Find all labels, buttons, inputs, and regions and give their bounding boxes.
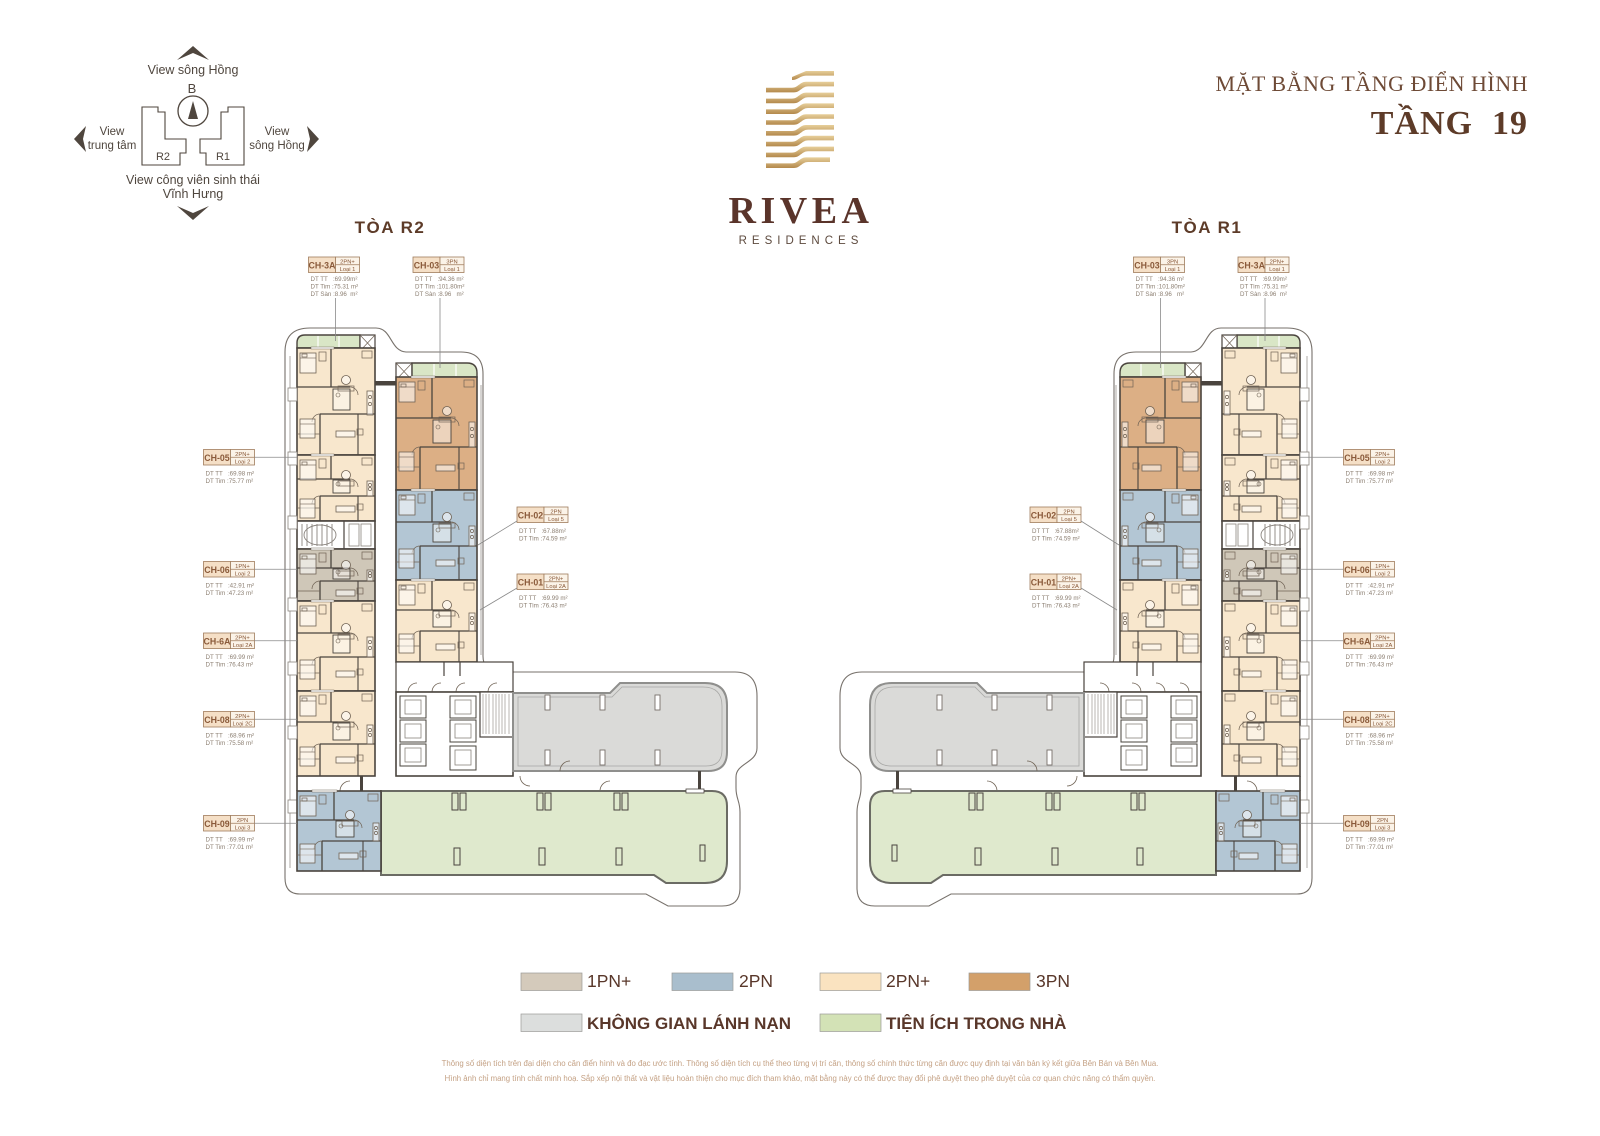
svg-text:RESIDENCES: RESIDENCES xyxy=(739,235,864,247)
svg-text:DT Tim :76.43 m²: DT Tim :76.43 m² xyxy=(1346,662,1394,669)
svg-text:2PN: 2PN xyxy=(550,510,561,516)
svg-text:DT TT :69.99 m²: DT TT :69.99 m² xyxy=(206,654,255,661)
svg-text:DT TT :69.98 m²: DT TT :69.98 m² xyxy=(206,471,255,478)
svg-text:CH-06: CH-06 xyxy=(1344,565,1370,575)
svg-text:View: View xyxy=(100,126,125,138)
svg-text:DT Sàn :8.96 m²: DT Sàn :8.96 m² xyxy=(1240,291,1287,298)
svg-text:CH-03: CH-03 xyxy=(1134,261,1160,271)
svg-text:Hình ảnh chỉ mang tính chất mi: Hình ảnh chỉ mang tính chất minh hoạ. Sắ… xyxy=(445,1074,1156,1083)
svg-text:DT TT :67.88m²: DT TT :67.88m² xyxy=(1032,528,1079,535)
svg-text:Loại 2C: Loại 2C xyxy=(1373,722,1393,728)
svg-text:R1: R1 xyxy=(216,151,230,163)
svg-text:sông Hồng: sông Hồng xyxy=(249,140,305,152)
svg-text:CH-3A: CH-3A xyxy=(309,261,337,271)
svg-text:Loại 3: Loại 3 xyxy=(235,826,251,832)
svg-text:2PN+: 2PN+ xyxy=(1375,636,1390,642)
svg-text:DT Tim :101.80m²: DT Tim :101.80m² xyxy=(415,284,464,291)
svg-text:DT Tim :75.58 m²: DT Tim :75.58 m² xyxy=(1346,740,1394,747)
svg-text:CH-09: CH-09 xyxy=(204,819,230,829)
svg-text:2PN+: 2PN+ xyxy=(886,971,930,991)
svg-text:Vĩnh Hưng: Vĩnh Hưng xyxy=(163,187,224,201)
svg-text:DT Tim :75.77 m²: DT Tim :75.77 m² xyxy=(206,478,254,485)
svg-text:DT Tim :76.43 m²: DT Tim :76.43 m² xyxy=(1032,603,1080,610)
svg-text:View công viên sinh thái: View công viên sinh thái xyxy=(126,173,260,187)
svg-text:DT Tim :75.31 m²: DT Tim :75.31 m² xyxy=(311,284,359,291)
svg-text:3PN: 3PN xyxy=(1036,971,1070,991)
svg-text:TẦNG 19: TẦNG 19 xyxy=(1371,103,1528,142)
svg-text:Loại 2A: Loại 2A xyxy=(546,584,566,590)
svg-text:Loại 5: Loại 5 xyxy=(1061,517,1077,523)
svg-text:2PN+: 2PN+ xyxy=(1062,577,1077,583)
svg-text:CH-01: CH-01 xyxy=(518,578,544,588)
svg-text:2PN+: 2PN+ xyxy=(1270,260,1285,266)
svg-text:CH-08: CH-08 xyxy=(204,715,230,725)
svg-text:Loại 2: Loại 2 xyxy=(1375,460,1391,466)
svg-text:1PN+: 1PN+ xyxy=(235,564,250,570)
svg-text:DT TT :69.99 m²: DT TT :69.99 m² xyxy=(1346,654,1395,661)
svg-text:DT Tim :76.43 m²: DT Tim :76.43 m² xyxy=(206,662,254,669)
svg-text:R2: R2 xyxy=(156,151,170,163)
svg-text:Loại 1: Loại 1 xyxy=(1269,267,1285,273)
svg-text:View: View xyxy=(265,126,290,138)
svg-text:CH-03: CH-03 xyxy=(414,261,440,271)
svg-text:DT TT :94.36 m²: DT TT :94.36 m² xyxy=(415,276,464,283)
svg-text:DT TT :69.99m²: DT TT :69.99m² xyxy=(1240,276,1287,283)
svg-text:Thông số diện tích trên đại di: Thông số diện tích trên đại diện cho căn… xyxy=(442,1059,1159,1068)
svg-text:Loại 2A: Loại 2A xyxy=(1059,584,1079,590)
svg-text:DT TT :67.88m²: DT TT :67.88m² xyxy=(519,528,566,535)
svg-text:DT Tim :75.58 m²: DT Tim :75.58 m² xyxy=(206,740,254,747)
svg-text:CH-02: CH-02 xyxy=(1031,511,1057,521)
svg-text:2PN+: 2PN+ xyxy=(235,452,250,458)
svg-text:CH-06: CH-06 xyxy=(204,565,230,575)
svg-text:DT Sàn :8.96 m²: DT Sàn :8.96 m² xyxy=(1136,291,1185,298)
svg-text:DT Tim :75.77 m²: DT Tim :75.77 m² xyxy=(1346,478,1394,485)
svg-text:2PN: 2PN xyxy=(1063,510,1074,516)
svg-text:B: B xyxy=(188,81,197,96)
svg-text:2PN+: 2PN+ xyxy=(340,260,355,266)
svg-text:DT TT :42.91 m²: DT TT :42.91 m² xyxy=(1346,583,1395,590)
svg-text:3PN: 3PN xyxy=(446,260,457,266)
svg-text:DT Tim :75.31 m²: DT Tim :75.31 m² xyxy=(1240,284,1288,291)
svg-text:DT Sàn :8.96 m²: DT Sàn :8.96 m² xyxy=(311,291,358,298)
svg-text:TÒA R2: TÒA R2 xyxy=(355,218,426,237)
svg-text:DT Tim :77.01 m²: DT Tim :77.01 m² xyxy=(206,844,254,851)
svg-text:DT TT :68.96 m²: DT TT :68.96 m² xyxy=(206,733,255,740)
svg-text:Loại 2A: Loại 2A xyxy=(233,643,253,649)
svg-text:2PN+: 2PN+ xyxy=(1375,452,1390,458)
svg-text:CH-6A: CH-6A xyxy=(204,637,232,647)
svg-text:Loại 2C: Loại 2C xyxy=(233,722,253,728)
svg-text:Loại 1: Loại 1 xyxy=(444,267,460,273)
svg-text:DT Tim :47.23 m²: DT Tim :47.23 m² xyxy=(206,590,254,597)
svg-text:CH-05: CH-05 xyxy=(1344,453,1370,463)
svg-text:Loại 2A: Loại 2A xyxy=(1373,643,1393,649)
svg-text:View sông Hồng: View sông Hồng xyxy=(148,63,239,77)
svg-text:1PN+: 1PN+ xyxy=(587,971,631,991)
svg-text:Loại 5: Loại 5 xyxy=(548,517,564,523)
svg-text:DT Tim :77.01 m²: DT Tim :77.01 m² xyxy=(1346,844,1394,851)
svg-text:RIVEA: RIVEA xyxy=(729,190,874,232)
svg-text:DT Sàn :8.96 m²: DT Sàn :8.96 m² xyxy=(415,291,464,298)
svg-text:CH-02: CH-02 xyxy=(518,511,544,521)
svg-text:DT Tim :74.59 m²: DT Tim :74.59 m² xyxy=(519,536,567,543)
svg-text:DT TT :69.98 m²: DT TT :69.98 m² xyxy=(1346,471,1395,478)
svg-text:DT Tim :47.23 m²: DT Tim :47.23 m² xyxy=(1346,590,1394,597)
svg-text:TIỆN ÍCH TRONG NHÀ: TIỆN ÍCH TRONG NHÀ xyxy=(886,1014,1066,1033)
svg-text:Loại 2: Loại 2 xyxy=(235,460,251,466)
svg-text:Loại 1: Loại 1 xyxy=(1165,267,1181,273)
svg-text:2PN+: 2PN+ xyxy=(549,577,564,583)
svg-text:DT TT :94.36 m²: DT TT :94.36 m² xyxy=(1136,276,1185,283)
svg-text:2PN+: 2PN+ xyxy=(235,636,250,642)
svg-text:CH-08: CH-08 xyxy=(1344,715,1370,725)
svg-text:Loại 2: Loại 2 xyxy=(235,572,251,578)
svg-text:DT TT :69.99 m²: DT TT :69.99 m² xyxy=(1346,837,1395,844)
svg-text:3PN: 3PN xyxy=(1167,260,1178,266)
svg-text:1PN+: 1PN+ xyxy=(1375,564,1390,570)
svg-text:2PN+: 2PN+ xyxy=(1375,714,1390,720)
svg-text:CH-05: CH-05 xyxy=(204,453,230,463)
svg-text:DT Tim :76.43 m²: DT Tim :76.43 m² xyxy=(519,603,567,610)
svg-text:MẶT BẰNG TẦNG ĐIỂN HÌNH: MẶT BẰNG TẦNG ĐIỂN HÌNH xyxy=(1215,71,1528,96)
svg-text:DT Tim :101.80m²: DT Tim :101.80m² xyxy=(1136,284,1185,291)
svg-text:CH-6A: CH-6A xyxy=(1344,637,1372,647)
svg-text:KHÔNG GIAN LÁNH NẠN: KHÔNG GIAN LÁNH NẠN xyxy=(587,1014,791,1033)
svg-text:2PN: 2PN xyxy=(1377,818,1388,824)
svg-text:CH-3A: CH-3A xyxy=(1238,261,1266,271)
svg-text:DT TT :69.99m²: DT TT :69.99m² xyxy=(311,276,358,283)
svg-text:DT TT :68.96 m²: DT TT :68.96 m² xyxy=(1346,733,1395,740)
svg-text:Loại 2: Loại 2 xyxy=(1375,572,1391,578)
svg-text:2PN+: 2PN+ xyxy=(235,714,250,720)
svg-text:DT TT :69.99 m²: DT TT :69.99 m² xyxy=(206,837,255,844)
svg-text:trung tâm: trung tâm xyxy=(88,140,137,152)
svg-text:CH-09: CH-09 xyxy=(1344,819,1370,829)
svg-text:Loại 1: Loại 1 xyxy=(340,267,356,273)
svg-text:2PN: 2PN xyxy=(739,971,773,991)
svg-text:CH-01: CH-01 xyxy=(1031,578,1057,588)
svg-text:DT TT :69.99 m²: DT TT :69.99 m² xyxy=(1032,595,1081,602)
svg-text:DT Tim :74.59 m²: DT Tim :74.59 m² xyxy=(1032,536,1080,543)
svg-text:DT TT :69.99 m²: DT TT :69.99 m² xyxy=(519,595,568,602)
svg-text:DT TT :42.91 m²: DT TT :42.91 m² xyxy=(206,583,255,590)
svg-text:2PN: 2PN xyxy=(237,818,248,824)
svg-text:Loại 3: Loại 3 xyxy=(1375,826,1391,832)
svg-text:TÒA R1: TÒA R1 xyxy=(1172,218,1243,237)
